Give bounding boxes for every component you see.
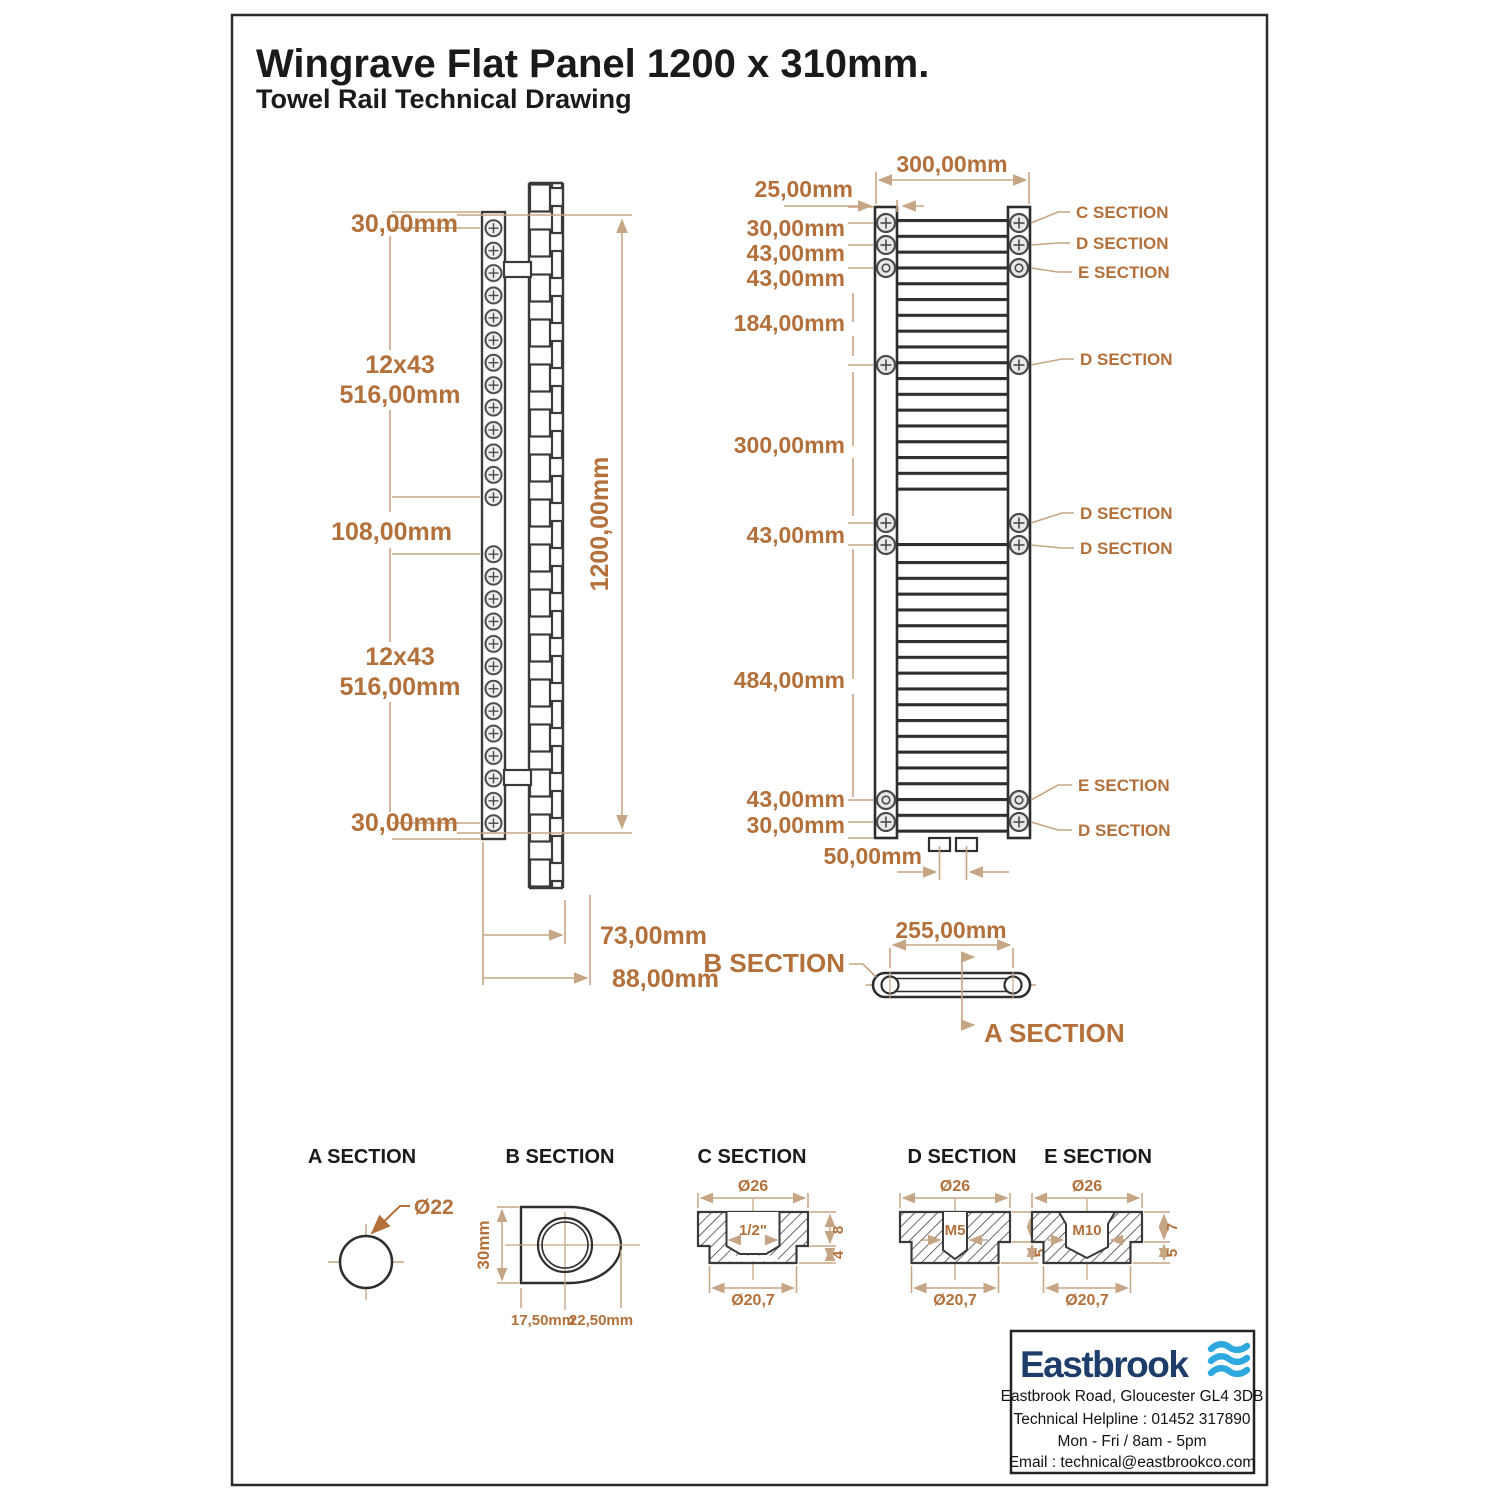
drawing-canvas: Wingrave Flat Panel 1200 x 310mm. Towel …: [0, 0, 1500, 1500]
dim-front-2: 43,00mm: [747, 265, 845, 291]
dim-side-group2-length: 516,00mm: [340, 673, 461, 701]
dim-front-7: 43,00mm: [747, 786, 845, 812]
section-e-depth2: 5: [1164, 1249, 1181, 1257]
section-c-title: C SECTION: [698, 1146, 807, 1168]
section-e-inner: Ø20,7: [1065, 1292, 1109, 1309]
dim-side-top-offset: 30,00mm: [351, 210, 458, 238]
dim-side-depth-to-rail: 73,00mm: [600, 922, 707, 950]
section-e-title: E SECTION: [1044, 1146, 1152, 1168]
logo-address: Eastbrook Road, Gloucester GL4 3DB: [1001, 1388, 1264, 1405]
section-c-inner: Ø20,7: [731, 1292, 775, 1309]
section-c-outer: Ø26: [738, 1178, 768, 1195]
section-b-offset-right: 22,50mm: [569, 1312, 633, 1329]
wall-bracket-arm-top: [504, 262, 531, 277]
callout-e-section-1: E SECTION: [1078, 263, 1170, 282]
side-screws-top-group: [484, 217, 504, 509]
callout-d-section-5: D SECTION: [1078, 821, 1171, 840]
section-c-thread: 1/2": [739, 1222, 767, 1239]
dim-front-width: 300,00mm: [896, 151, 1007, 177]
front-rung-middle: [897, 543, 1008, 546]
page-title: Wingrave Flat Panel 1200 x 310mm.: [256, 42, 929, 86]
section-d-inner: Ø20,7: [933, 1292, 977, 1309]
side-rung-column: [529, 183, 563, 888]
dim-side-mid-gap: 108,00mm: [331, 518, 452, 546]
plan-a-section-label: A SECTION: [984, 1018, 1125, 1048]
dim-side-group2-count: 12x43: [365, 643, 435, 671]
section-a-diameter: Ø22: [414, 1196, 454, 1219]
callout-d-section-2: D SECTION: [1080, 350, 1173, 369]
dim-front-pipe-spacing: 50,00mm: [824, 843, 922, 869]
dim-side-group1-length: 516,00mm: [340, 381, 461, 409]
dim-front-1: 43,00mm: [747, 240, 845, 266]
callout-d-section-3: D SECTION: [1080, 504, 1173, 523]
dim-front-5: 43,00mm: [747, 522, 845, 548]
section-e-outer: Ø26: [1072, 1178, 1102, 1195]
section-e-depth1: 7: [1164, 1223, 1181, 1231]
section-a-title: A SECTION: [308, 1146, 416, 1168]
logo-helpline: Technical Helpline : 01452 317890: [1014, 1411, 1251, 1428]
section-b-offset-left: 17,50mm: [511, 1312, 575, 1329]
logo-email: Email : technical@eastbrookco.com: [1009, 1454, 1256, 1471]
section-b-title: B SECTION: [506, 1146, 615, 1168]
section-d-thread: M5: [945, 1222, 966, 1239]
dim-front-3: 184,00mm: [734, 310, 845, 336]
plan-b-section-label: B SECTION: [703, 948, 845, 978]
section-e-thread: M10: [1072, 1222, 1101, 1239]
section-a-tube: [340, 1236, 392, 1288]
section-c-depth1: 8: [830, 1226, 847, 1234]
callout-d-section-4: D SECTION: [1080, 539, 1173, 558]
section-d-title: D SECTION: [908, 1146, 1017, 1168]
brand-wordmark: Eastbrook: [1020, 1344, 1189, 1385]
section-b-height: 30mm: [474, 1220, 493, 1269]
dim-side-group1-count: 12x43: [365, 351, 435, 379]
dim-front-0: 30,00mm: [747, 215, 845, 241]
callout-c-section: C SECTION: [1076, 203, 1169, 222]
dim-front-6: 484,00mm: [734, 667, 845, 693]
side-screws-bottom-group: [484, 543, 504, 835]
page-subtitle: Towel Rail Technical Drawing: [256, 84, 632, 114]
logo-hours: Mon - Fri / 8am - 5pm: [1058, 1433, 1207, 1450]
dim-front-8: 30,00mm: [747, 812, 845, 838]
dim-side-bottom-offset: 30,00mm: [351, 809, 458, 837]
section-d-outer: Ø26: [940, 1178, 970, 1195]
front-rungs-top: [897, 219, 1008, 503]
dim-plan-width: 255,00mm: [895, 917, 1006, 943]
wall-bracket-arm-bottom: [504, 770, 531, 785]
dim-front-4: 300,00mm: [734, 432, 845, 458]
callout-d-section-1: D SECTION: [1076, 234, 1169, 253]
dim-front-rung-inset: 25,00mm: [755, 176, 853, 202]
callout-e-section-2: E SECTION: [1078, 776, 1170, 795]
technical-drawing-page: Wingrave Flat Panel 1200 x 310mm. Towel …: [0, 0, 1500, 1500]
logo-box: Eastbrook Eastbrook Road, Gloucester GL4…: [1001, 1331, 1264, 1473]
section-c-depth2: 4: [830, 1250, 847, 1259]
dim-side-overall-height: 1200,00mm: [586, 457, 614, 592]
front-rungs-bottom: [897, 561, 1008, 833]
